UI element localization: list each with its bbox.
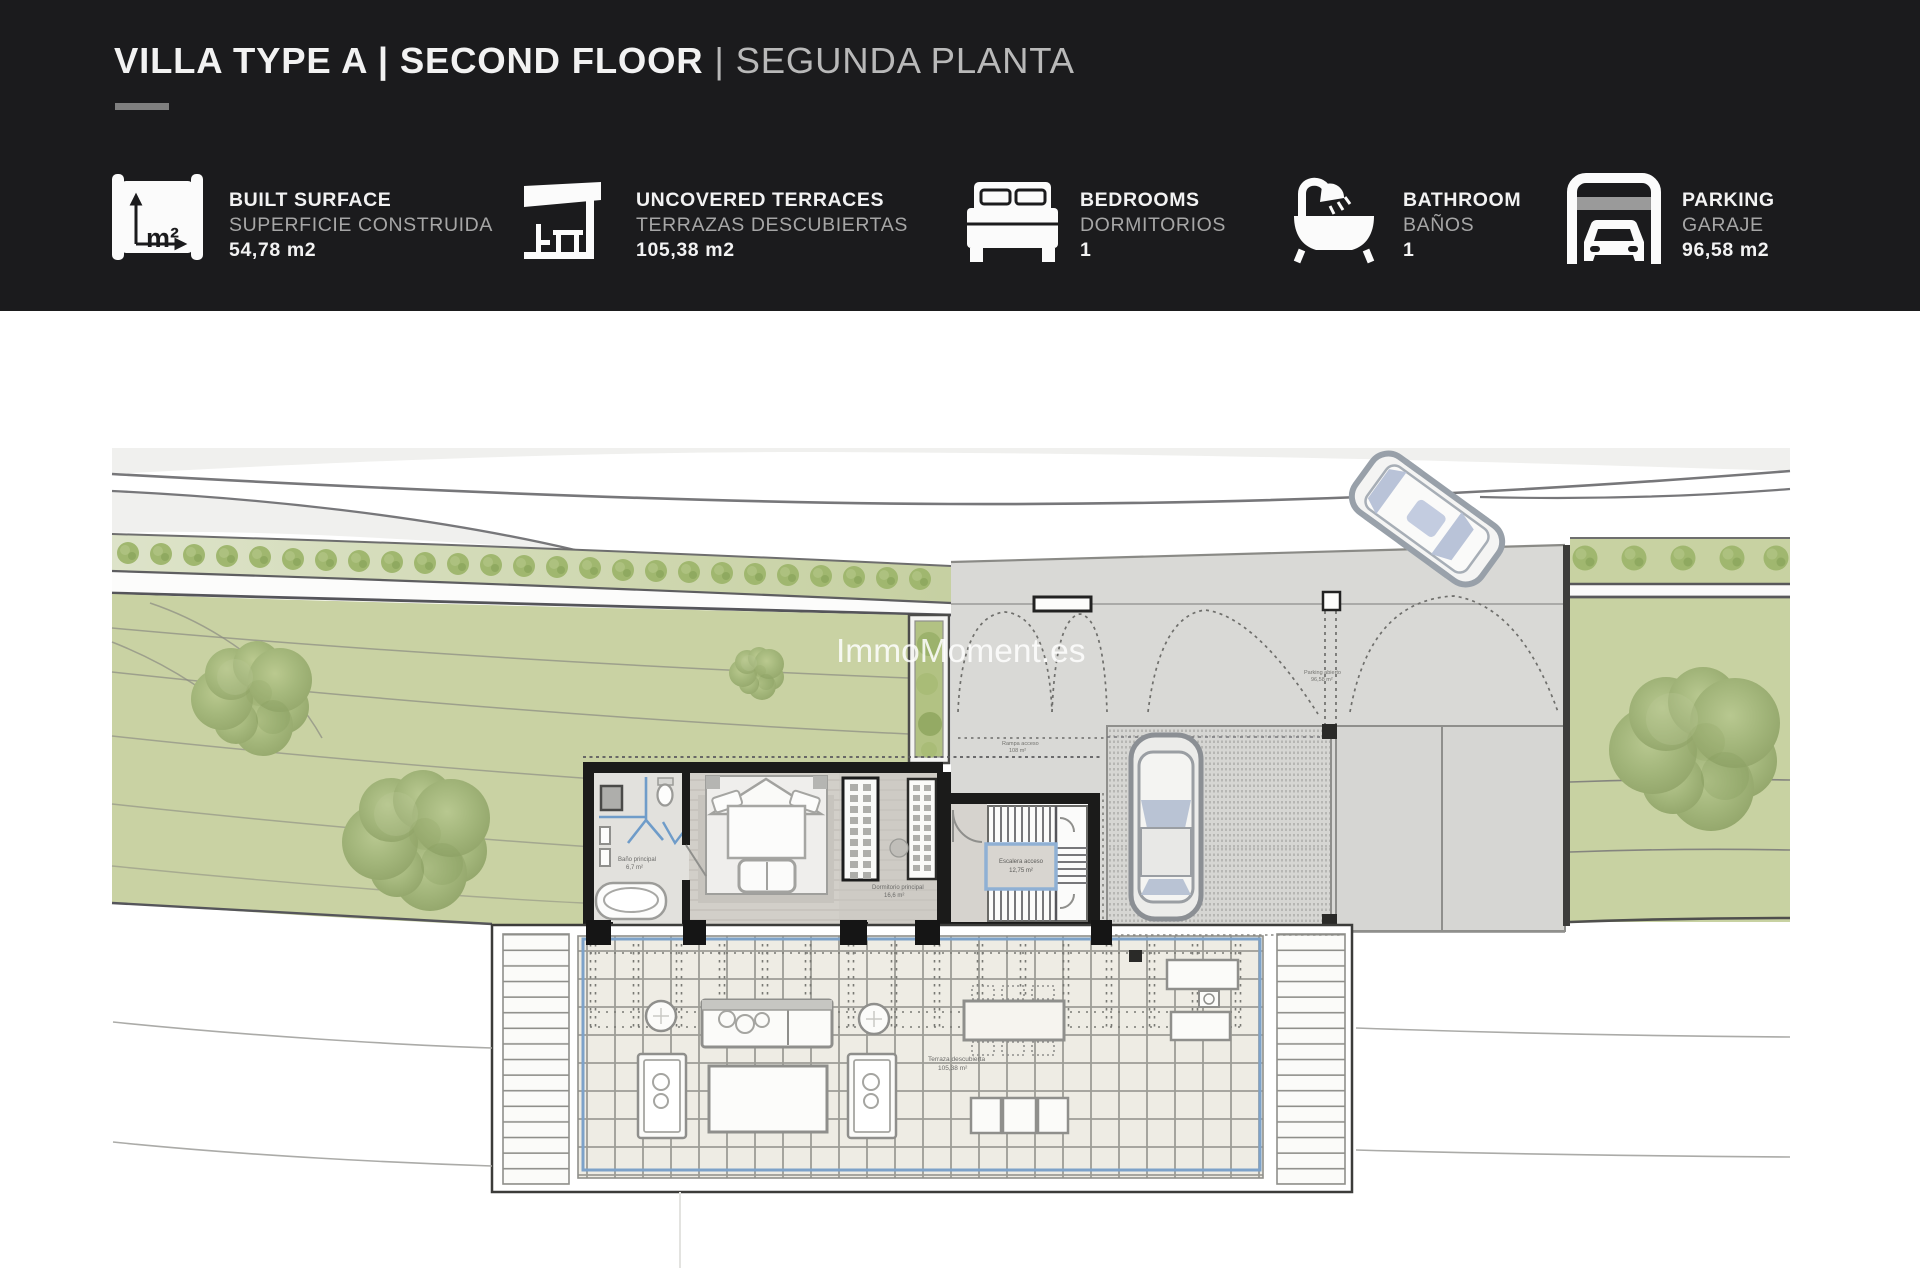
svg-text:ImmoMoment.es: ImmoMoment.es [836, 633, 1085, 670]
svg-text:BUILT SURFACE: BUILT SURFACE [229, 189, 391, 211]
svg-text:105,38 m²: 105,38 m² [938, 1065, 968, 1072]
svg-text:m²: m² [146, 223, 179, 253]
svg-text:108 m²: 108 m² [1009, 748, 1026, 754]
svg-text:1: 1 [1080, 239, 1091, 261]
svg-text:BATHROOM: BATHROOM [1403, 189, 1521, 211]
svg-text:54,78 m2: 54,78 m2 [229, 239, 316, 261]
svg-text:VILLA TYPE A | SECOND FLOOR |: VILLA TYPE A | SECOND FLOOR | SEGUNDA PL… [114, 40, 1075, 82]
svg-text:Rampa acceso: Rampa acceso [1002, 741, 1039, 747]
svg-text:6,7 m²: 6,7 m² [626, 865, 643, 871]
svg-text:Terraza descubierta: Terraza descubierta [928, 1056, 985, 1063]
svg-text:BEDROOMS: BEDROOMS [1080, 189, 1200, 211]
svg-text:BAÑOS: BAÑOS [1403, 212, 1474, 236]
svg-text:GARAJE: GARAJE [1682, 214, 1764, 236]
svg-text:PARKING: PARKING [1682, 189, 1775, 211]
svg-text:UNCOVERED TERRACES: UNCOVERED TERRACES [636, 189, 884, 211]
svg-text:Parking abierto: Parking abierto [1304, 670, 1341, 676]
svg-text:16,6 m²: 16,6 m² [884, 893, 904, 899]
svg-text:Baño principal: Baño principal [618, 857, 656, 863]
svg-text:12,75 m²: 12,75 m² [1009, 868, 1033, 874]
svg-text:SUPERFICIE CONSTRUIDA: SUPERFICIE CONSTRUIDA [229, 214, 493, 236]
svg-text:Dormitorio principal: Dormitorio principal [872, 885, 924, 891]
svg-text:96,58 m2: 96,58 m2 [1682, 239, 1769, 261]
svg-text:DORMITORIOS: DORMITORIOS [1080, 214, 1226, 236]
svg-text:1: 1 [1403, 239, 1414, 261]
svg-text:Escalera acceso: Escalera acceso [999, 859, 1044, 865]
svg-text:96,58 m²: 96,58 m² [1311, 677, 1333, 683]
svg-text:TERRAZAS DESCUBIERTAS: TERRAZAS DESCUBIERTAS [636, 214, 908, 236]
svg-text:105,38 m2: 105,38 m2 [636, 239, 735, 261]
